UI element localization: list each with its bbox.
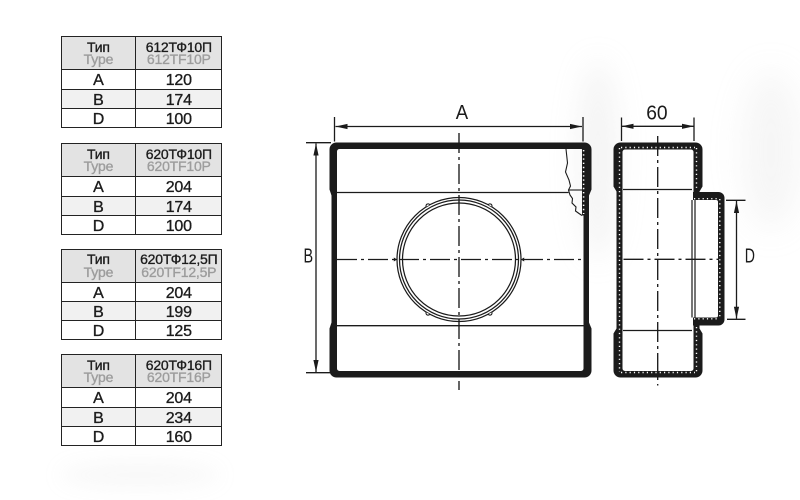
svg-text:A: A — [456, 101, 469, 124]
svg-text:B: B — [304, 245, 314, 268]
svg-text:D: D — [745, 245, 755, 268]
svg-text:60: 60 — [646, 103, 667, 125]
